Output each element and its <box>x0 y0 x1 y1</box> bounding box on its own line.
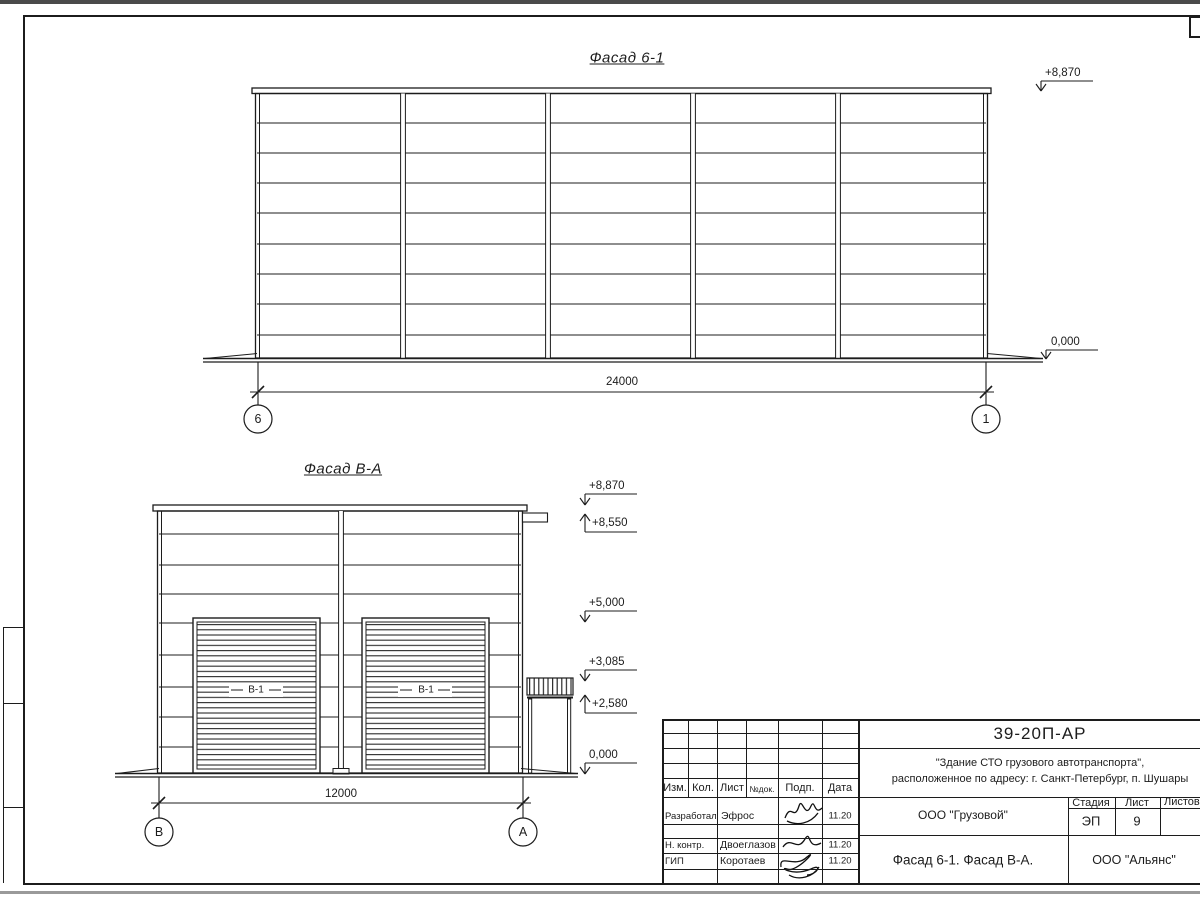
signature-efros <box>785 803 822 823</box>
stamp-line <box>717 719 718 883</box>
facade2-elev-8550: +8,550 <box>592 517 628 529</box>
stamp-col-izm: Изм. <box>663 782 687 794</box>
stamp-line <box>662 748 1200 749</box>
frame-top <box>23 15 1200 17</box>
stamp-org: ООО "Грузовой" <box>918 808 1008 822</box>
axis-bubble-v: В <box>155 825 163 839</box>
stamp-line <box>1068 797 1069 883</box>
stamp-doc-number: 39-20П-АР <box>993 724 1086 744</box>
facade2-elev-8870: +8,870 <box>589 480 625 492</box>
stamp-line <box>1115 797 1116 835</box>
drawing-sheet: Фасад 6-1 Фасад В-А +8,870 0,000 +8,870 … <box>0 0 1200 900</box>
stamp-row1-date: 11.20 <box>828 811 851 822</box>
stamp-line <box>662 778 858 779</box>
stamp-line <box>662 763 858 764</box>
signature-dvoeglazov-korotaev <box>781 836 821 877</box>
stamp-line <box>662 719 1200 721</box>
stamp-line <box>746 719 747 797</box>
stamp-row3-name: Коротаев <box>720 855 765 867</box>
stamp-line <box>662 719 664 885</box>
facade2-elev-3085: +3,085 <box>589 656 625 668</box>
stamp-line <box>662 853 858 854</box>
facade2-dim-12000: 12000 <box>325 788 357 800</box>
frame-bottom <box>23 883 1200 885</box>
facade2-elev-5000: +5,000 <box>589 597 625 609</box>
axis-bubble-1: 1 <box>983 412 990 426</box>
sheet-bottom-edge <box>0 891 1200 894</box>
stamp-project-name: "Здание СТО грузового автотранспорта", р… <box>892 756 1188 788</box>
stamp-line <box>822 719 823 883</box>
stamp-sheet-number: 9 <box>1133 814 1140 829</box>
stamp-line <box>662 797 1200 798</box>
margin-cells-left <box>3 627 4 883</box>
stamp-col-kol: Кол. <box>692 782 714 794</box>
facade1-title: Фасад 6-1 <box>590 50 665 67</box>
stamp-row1-name: Эфрос <box>721 810 754 822</box>
stamp-sheet-title: Фасад 6-1. Фасад В-А. <box>893 853 1034 868</box>
margin-cell-line1 <box>3 627 23 628</box>
stamp-line <box>662 824 858 825</box>
facade1-elev-ground: 0,000 <box>1051 336 1080 348</box>
stamp-row3-date: 11.20 <box>828 856 851 867</box>
facade2-elev-0000: 0,000 <box>589 749 618 761</box>
stamp-line <box>858 835 1200 836</box>
stamp-col-ndok: №док. <box>750 784 775 794</box>
stamp-listov-label: Листов <box>1164 797 1200 808</box>
stamp-line <box>858 719 860 883</box>
stamp-row1-role: Разработал <box>665 811 717 822</box>
stamp-row2-role: Н. контр. <box>665 840 704 851</box>
stamp-stage-label: Стадия <box>1072 797 1110 809</box>
stamp-col-data: Дата <box>828 782 852 794</box>
stamp-company: ООО "Альянс" <box>1092 853 1176 867</box>
facade1-dim-24000: 24000 <box>606 376 638 388</box>
facade2-title: Фасад В-А <box>304 461 382 478</box>
stamp-project-line2: расположенное по адресу: г. Санкт-Петерб… <box>892 772 1188 788</box>
facade1-elev-top: +8,870 <box>1045 67 1081 79</box>
door-label-right: В-1 <box>416 685 436 696</box>
stamp-col-list: Лист <box>720 782 744 794</box>
screen-top-edge <box>0 0 1200 4</box>
stamp-stage-value: ЭП <box>1082 814 1101 829</box>
stamp-row3-role: ГИП <box>665 856 684 867</box>
stamp-project-line1: "Здание СТО грузового автотранспорта", <box>892 756 1188 772</box>
stamp-row2-name: Двоеглазов <box>720 839 776 851</box>
margin-cell-line2 <box>3 703 23 704</box>
stamp-line <box>688 719 689 797</box>
door-label-left: В-1 <box>246 685 266 696</box>
stamp-row2-date: 11.20 <box>828 840 851 851</box>
stamp-line <box>778 719 779 883</box>
axis-bubble-6: 6 <box>255 412 262 426</box>
stamp-line <box>662 869 858 870</box>
stamp-col-podp: Подп. <box>785 782 814 794</box>
frame-left <box>23 15 25 883</box>
stamp-line <box>662 733 858 734</box>
facade2-elev-2580: +2,580 <box>592 698 628 710</box>
margin-cell-line3 <box>3 807 23 808</box>
stamp-line <box>1160 797 1161 835</box>
corner-box-left <box>1189 16 1191 37</box>
axis-bubble-a: А <box>519 825 527 839</box>
corner-box-top <box>1189 16 1200 18</box>
corner-box-bottom <box>1189 36 1200 38</box>
stamp-list-label: Лист <box>1125 797 1149 809</box>
